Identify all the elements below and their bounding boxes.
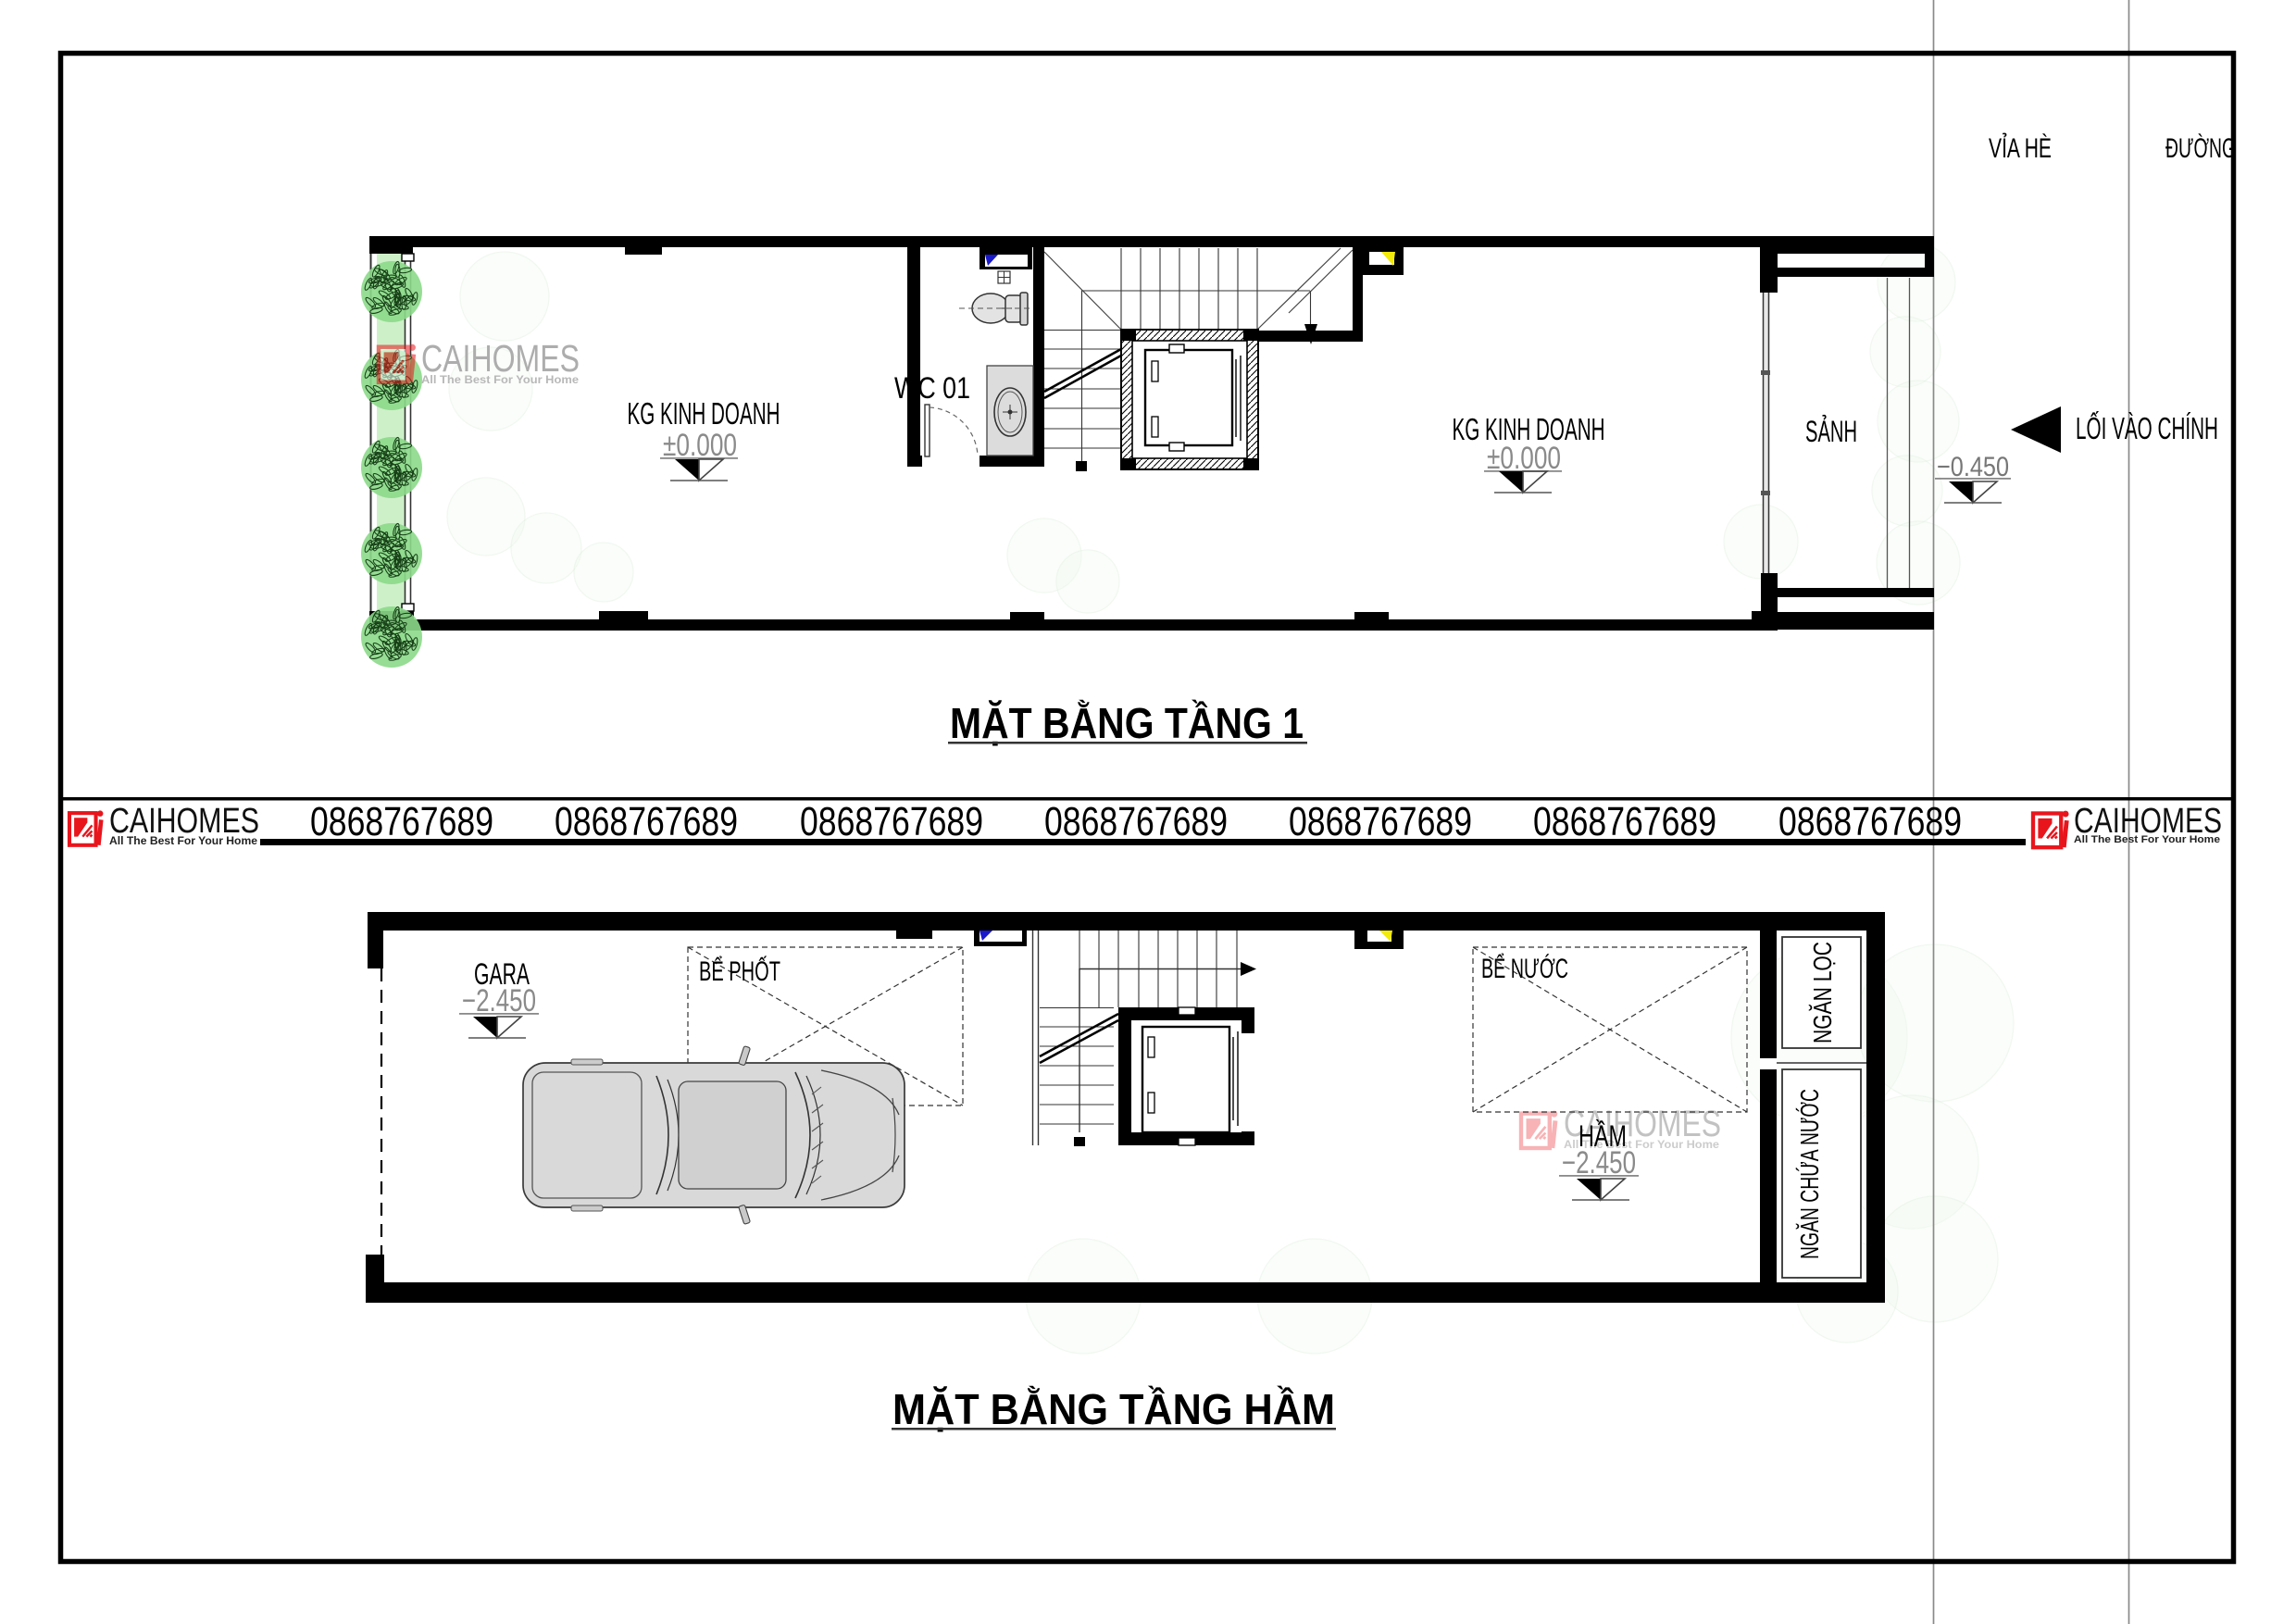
- svg-text:SẢNH: SẢNH: [1805, 415, 1857, 448]
- svg-text:BỂ NƯỚC: BỂ NƯỚC: [1481, 953, 1568, 984]
- svg-text:MẶT BẰNG TẦNG 1: MẶT BẰNG TẦNG 1: [950, 699, 1304, 747]
- svg-text:BỂ PHỐT: BỂ PHỐT: [699, 956, 780, 987]
- svg-text:0868767689: 0868767689: [555, 799, 738, 844]
- svg-text:NGĂN LỌC: NGĂN LỌC: [1808, 942, 1837, 1043]
- svg-text:WC 01: WC 01: [894, 371, 970, 405]
- svg-text:All The Best For Your Home: All The Best For Your Home: [2074, 834, 2220, 845]
- svg-text:CAIHOMES: CAIHOMES: [421, 337, 580, 380]
- svg-text:0868767689: 0868767689: [1289, 799, 1472, 844]
- svg-text:All The Best For Your Home: All The Best For Your Home: [421, 375, 579, 386]
- svg-text:VỈA HÈ: VỈA HÈ: [1989, 132, 2052, 164]
- svg-text:0868767689: 0868767689: [1778, 799, 1962, 844]
- svg-text:0868767689: 0868767689: [1044, 799, 1228, 844]
- svg-text:0868767689: 0868767689: [800, 799, 983, 844]
- svg-text:KG KINH DOANH: KG KINH DOANH: [628, 396, 780, 431]
- svg-text:LỐI VÀO CHÍNH: LỐI VÀO CHÍNH: [2076, 410, 2218, 445]
- svg-text:All The Best For Your Home: All The Best For Your Home: [109, 836, 257, 847]
- svg-text:NGĂN CHỨA NƯỚC: NGĂN CHỨA NƯỚC: [1795, 1089, 1824, 1259]
- svg-text:CAIHOMES: CAIHOMES: [109, 802, 259, 841]
- svg-text:MẶT BẰNG TẦNG HẦM: MẶT BẰNG TẦNG HẦM: [892, 1385, 1335, 1433]
- svg-text:0868767689: 0868767689: [1533, 799, 1716, 844]
- svg-text:0868767689: 0868767689: [310, 799, 493, 844]
- svg-text:ĐƯỜNG: ĐƯỜNG: [2165, 133, 2236, 164]
